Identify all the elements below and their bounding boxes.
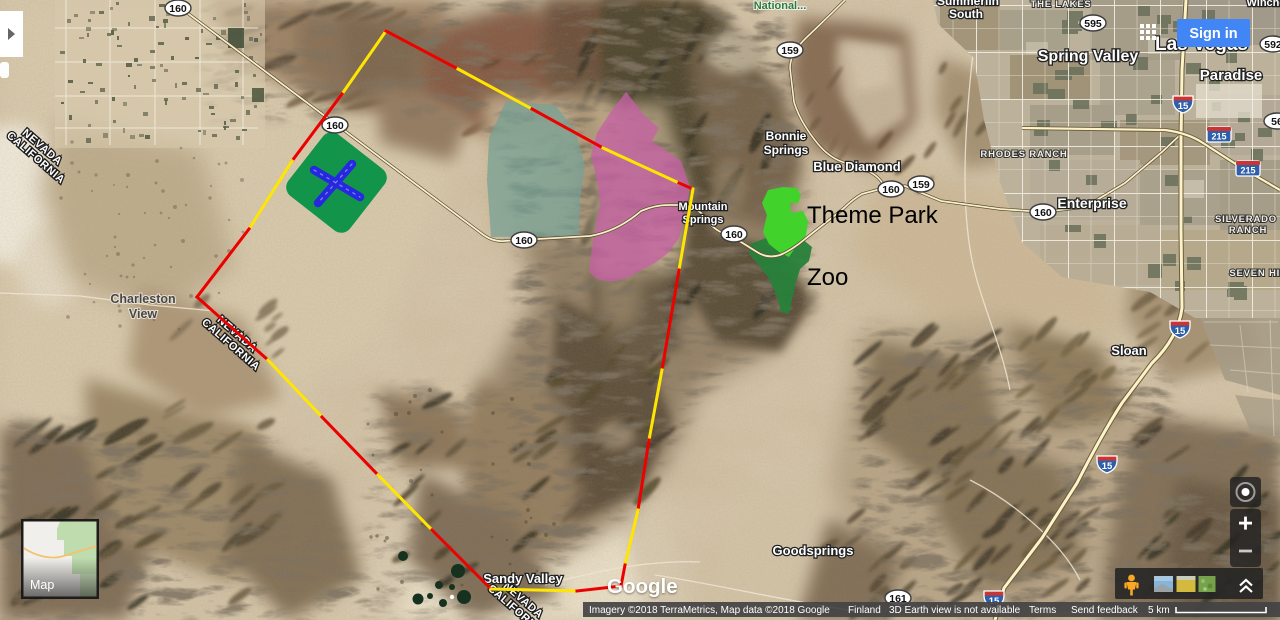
svg-text:160: 160 xyxy=(1034,207,1052,219)
svg-text:RANCH: RANCH xyxy=(1229,225,1267,236)
svg-text:Spring Valley: Spring Valley xyxy=(1038,48,1139,65)
svg-text:215: 215 xyxy=(1240,166,1255,176)
svg-text:Map: Map xyxy=(30,578,54,592)
svg-text:160: 160 xyxy=(515,235,533,247)
svg-text:592: 592 xyxy=(1264,39,1280,51)
svg-text:56: 56 xyxy=(1271,116,1280,128)
svg-text:595: 595 xyxy=(1084,18,1102,30)
svg-text:Theme Park: Theme Park xyxy=(807,202,939,229)
svg-text:3D Earth view is not available: 3D Earth view is not available xyxy=(889,605,1021,616)
svg-text:SEVEN HIL: SEVEN HIL xyxy=(1229,268,1280,279)
svg-text:160: 160 xyxy=(326,120,344,132)
svg-text:Charleston: Charleston xyxy=(110,292,175,306)
svg-text:15: 15 xyxy=(1102,461,1113,472)
svg-text:160: 160 xyxy=(882,184,900,196)
svg-text:Paradise: Paradise xyxy=(1200,67,1263,84)
svg-text:Sloan: Sloan xyxy=(1111,343,1146,358)
svg-text:Blue Diamond: Blue Diamond xyxy=(813,159,900,174)
svg-text:Google: Google xyxy=(607,575,678,598)
svg-text:RHODES RANCH: RHODES RANCH xyxy=(980,149,1067,160)
svg-text:160: 160 xyxy=(725,229,743,241)
svg-text:Zoo: Zoo xyxy=(807,264,848,291)
svg-text:Summerlin: Summerlin xyxy=(937,0,999,8)
svg-text:159: 159 xyxy=(781,45,799,57)
svg-text:Enterprise: Enterprise xyxy=(1057,195,1126,211)
svg-text:Goodsprings: Goodsprings xyxy=(773,543,854,558)
svg-text:15: 15 xyxy=(1178,101,1189,112)
svg-text:5 km: 5 km xyxy=(1148,605,1170,616)
svg-text:Winche: Winche xyxy=(1246,0,1280,9)
svg-text:215: 215 xyxy=(1211,132,1226,142)
svg-text:Terms: Terms xyxy=(1029,605,1056,616)
svg-text:View: View xyxy=(129,307,158,321)
svg-text:Send feedback: Send feedback xyxy=(1071,605,1139,616)
svg-text:THE LAKES: THE LAKES xyxy=(1030,0,1091,10)
svg-text:Imagery ©2018 TerraMetrics, Ma: Imagery ©2018 TerraMetrics, Map data ©20… xyxy=(589,605,830,616)
svg-text:15: 15 xyxy=(1175,326,1186,337)
svg-text:Mountain: Mountain xyxy=(679,201,728,213)
svg-text:Bonnie: Bonnie xyxy=(766,129,807,143)
svg-text:Sandy Valley: Sandy Valley xyxy=(483,571,563,586)
svg-text:159: 159 xyxy=(912,179,930,191)
svg-text:Finland: Finland xyxy=(848,605,881,616)
svg-text:National...: National... xyxy=(754,0,807,12)
svg-text:160: 160 xyxy=(169,3,187,15)
svg-text:SILVERADO: SILVERADO xyxy=(1215,214,1277,225)
svg-text:Sign in: Sign in xyxy=(1189,26,1237,42)
svg-text:Springs: Springs xyxy=(764,143,809,157)
svg-text:South: South xyxy=(949,7,983,21)
